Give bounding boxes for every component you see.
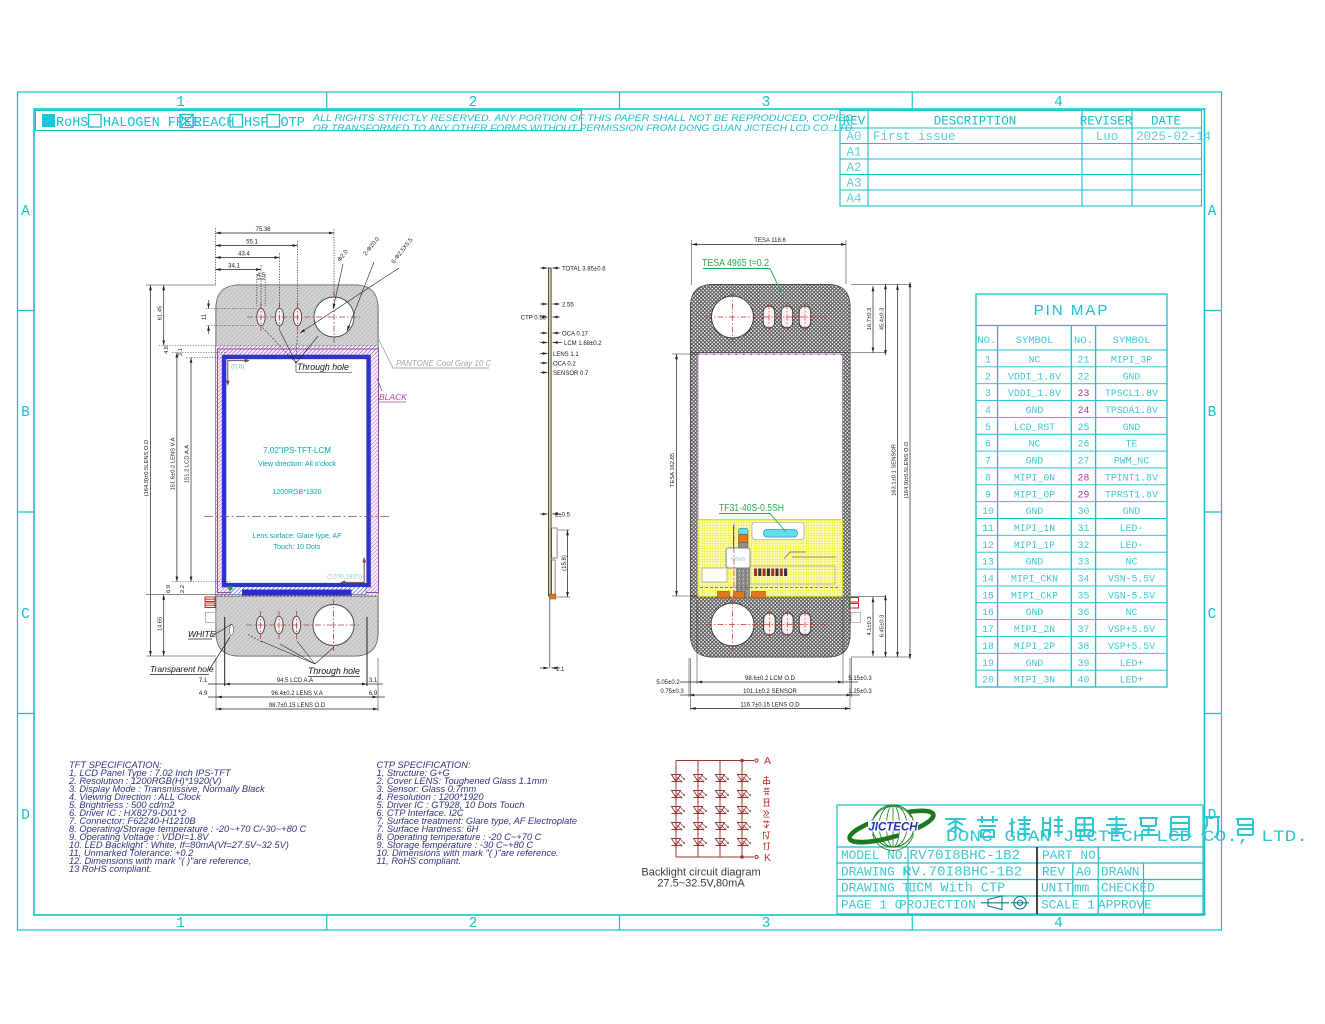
svg-text:101.1±0.2 SENSOR: 101.1±0.2 SENSOR — [743, 689, 797, 695]
svg-text:11: 11 — [982, 523, 994, 534]
svg-text:4.8: 4.8 — [164, 346, 170, 354]
svg-text:36: 36 — [1078, 607, 1090, 618]
svg-text:TFT SPECIFICATION: 1, LCD Pane: TFT SPECIFICATION: 1, LCD Panel Type : 7… — [68, 760, 309, 874]
svg-text:5.05±0.2: 5.05±0.2 — [656, 680, 680, 686]
svg-text:RoHS: RoHS — [56, 116, 88, 131]
svg-text:43.4: 43.4 — [238, 252, 250, 258]
svg-text:3.1: 3.1 — [369, 678, 378, 684]
svg-text:0.75±0.3: 0.75±0.3 — [660, 689, 684, 695]
svg-text:LED+: LED+ — [1120, 658, 1144, 669]
svg-text:SENSOR 0.7: SENSOR 0.7 — [553, 371, 589, 377]
svg-text:C: C — [21, 607, 30, 623]
svg-text:MIPI_0N: MIPI_0N — [1014, 472, 1055, 483]
svg-text:A0: A0 — [846, 130, 861, 144]
svg-text:14: 14 — [982, 574, 994, 585]
svg-text:VSN-5.5V: VSN-5.5V — [1108, 574, 1155, 585]
svg-text:B: B — [21, 405, 30, 421]
svg-text:Through hole: Through hole — [308, 666, 360, 676]
svg-text:GT928: GT928 — [731, 557, 745, 562]
svg-text:TOTAL 3.85±0.6: TOTAL 3.85±0.6 — [562, 267, 606, 273]
svg-text:LCD_RST: LCD_RST — [1014, 422, 1055, 433]
svg-text:TESA 118.6: TESA 118.6 — [754, 238, 786, 244]
svg-text:MIPI_CKN: MIPI_CKN — [1011, 574, 1058, 585]
svg-text:14.65: 14.65 — [158, 617, 164, 632]
svg-text:2.2: 2.2 — [180, 585, 186, 593]
svg-text:16: 16 — [982, 607, 994, 618]
svg-text:JICTECH: JICTECH — [868, 822, 918, 834]
svg-text:GND: GND — [1123, 422, 1141, 433]
svg-text:30: 30 — [1078, 506, 1090, 517]
svg-text:25: 25 — [1078, 422, 1090, 433]
svg-text:DRAWN: DRAWN — [1101, 865, 1139, 880]
svg-text:REV: REV — [843, 115, 866, 129]
svg-text:NC: NC — [1029, 439, 1041, 450]
svg-text:4.5: 4.5 — [257, 273, 266, 279]
svg-text:40: 40 — [1078, 675, 1090, 686]
svg-text:4.9: 4.9 — [199, 691, 208, 697]
svg-text:17: 17 — [982, 624, 994, 635]
svg-text:151.2 LCD A.A: 151.2 LCD A.A — [185, 445, 191, 483]
svg-text:26: 26 — [1078, 439, 1090, 450]
svg-text:23: 23 — [1078, 388, 1090, 399]
svg-text:75.36: 75.36 — [255, 227, 271, 233]
svg-text:35: 35 — [1078, 590, 1090, 601]
svg-text:7.02"IPS-TFT-LCM: 7.02"IPS-TFT-LCM — [263, 446, 331, 455]
svg-text:CHECKED: CHECKED — [1101, 881, 1155, 896]
svg-text:(164.9)±0.5LENS O.D: (164.9)±0.5LENS O.D — [904, 442, 910, 499]
svg-text:38: 38 — [1078, 641, 1090, 652]
svg-text:A: A — [21, 204, 30, 220]
svg-text:32: 32 — [1078, 540, 1090, 551]
svg-text:LED+: LED+ — [1120, 675, 1144, 686]
svg-text:4: 4 — [985, 405, 991, 416]
svg-text:6.9: 6.9 — [166, 585, 172, 593]
svg-text:39: 39 — [1078, 658, 1090, 669]
svg-text:2: 2 — [469, 916, 478, 932]
svg-text:MIPI_3P: MIPI_3P — [1111, 355, 1152, 366]
svg-text:REVISER: REVISER — [1080, 115, 1133, 129]
svg-text:MIPI_1P: MIPI_1P — [1014, 540, 1055, 551]
svg-text:12: 12 — [982, 540, 994, 551]
svg-text:HALOGEN FREE: HALOGEN FREE — [103, 116, 200, 131]
svg-text:11: 11 — [202, 313, 208, 320]
svg-text:TF31-40S-0.5SH: TF31-40S-0.5SH — [719, 503, 784, 514]
svg-text:Φ2.0: Φ2.0 — [337, 249, 350, 264]
svg-text:TE: TE — [1126, 439, 1138, 450]
svg-text:18: 18 — [982, 641, 994, 652]
svg-text:28: 28 — [1078, 472, 1090, 483]
svg-text:MIPI_0P: MIPI_0P — [1014, 489, 1055, 500]
svg-text:Transparent hole: Transparent hole — [150, 664, 214, 674]
svg-text:DRAWING TI: DRAWING TI — [841, 881, 918, 896]
svg-text:DESCRIPTION: DESCRIPTION — [934, 115, 1017, 129]
svg-text:PROJECTION: PROJECTION — [899, 898, 976, 913]
svg-text:NO.: NO. — [1074, 335, 1093, 347]
svg-text:CTP 0.55: CTP 0.55 — [521, 316, 547, 322]
svg-text:A2: A2 — [846, 161, 861, 175]
svg-text:mm: mm — [1074, 881, 1090, 896]
svg-text:6.45±0.3: 6.45±0.3 — [880, 615, 886, 638]
svg-text:1: 1 — [176, 95, 185, 111]
svg-text:BLACK: BLACK — [379, 392, 407, 402]
svg-text:9: 9 — [985, 489, 991, 500]
svg-text:VSN-5.5V: VSN-5.5V — [1108, 590, 1155, 601]
svg-text:LED-: LED- — [1120, 523, 1144, 534]
svg-text:WHITE: WHITE — [188, 629, 216, 639]
svg-text:DRAWING N: DRAWING N — [841, 865, 910, 880]
svg-text:SYMBOL: SYMBOL — [1016, 335, 1054, 347]
svg-text:37: 37 — [1078, 624, 1090, 635]
svg-text:GND: GND — [1026, 658, 1044, 669]
svg-text:3: 3 — [762, 95, 771, 111]
svg-text:UNIT: UNIT — [1041, 881, 1072, 896]
svg-text:CTP SPECIFICATION: 1, Structur: CTP SPECIFICATION: 1, Structure: G+G 2. … — [376, 760, 580, 866]
svg-text:(1200,1920): (1200,1920) — [327, 574, 362, 581]
svg-text:MIPI_2P: MIPI_2P — [1014, 641, 1055, 652]
svg-text:SYMBOL: SYMBOL — [1113, 335, 1151, 347]
svg-text:TPSCL1.8V: TPSCL1.8V — [1105, 388, 1158, 399]
svg-text:(15.8): (15.8) — [562, 555, 568, 571]
svg-text:2: 2 — [469, 95, 478, 111]
svg-text:MIPI_1N: MIPI_1N — [1014, 523, 1055, 534]
svg-text:8: 8 — [985, 472, 991, 483]
svg-text:A1: A1 — [846, 146, 861, 160]
svg-text:View direction: All o'clock: View direction: All o'clock — [258, 461, 336, 468]
svg-text:98.7±0.15 LENS O.D: 98.7±0.15 LENS O.D — [269, 703, 326, 709]
svg-text:PWM_NC: PWM_NC — [1114, 456, 1149, 467]
svg-text:6: 6 — [985, 439, 991, 450]
svg-text:(164.9)±0.5LENS O.D: (164.9)±0.5LENS O.D — [144, 440, 150, 497]
svg-text:VDDI_1.8V: VDDI_1.8V — [1008, 371, 1061, 382]
svg-text:19: 19 — [982, 658, 994, 669]
svg-text:Through hole: Through hole — [297, 362, 349, 372]
svg-text:D: D — [21, 808, 30, 824]
svg-text:C: C — [1208, 607, 1217, 623]
svg-text:Lens surface: Glare type, AF: Lens surface: Glare type, AF — [253, 533, 342, 540]
svg-text:TPSDA1.8V: TPSDA1.8V — [1105, 405, 1158, 416]
svg-text:Luo: Luo — [1096, 130, 1119, 144]
svg-text:GND: GND — [1123, 506, 1141, 517]
svg-text:REV: REV — [1042, 865, 1065, 880]
svg-text:A4: A4 — [846, 192, 861, 206]
svg-text:TPRST1.8V: TPRST1.8V — [1105, 489, 1158, 500]
svg-text:20: 20 — [982, 675, 994, 686]
svg-text:GND: GND — [1026, 607, 1044, 618]
svg-text:LENS 1.1: LENS 1.1 — [553, 352, 579, 358]
svg-text:PANTONE Cool Gray 10 C: PANTONE Cool Gray 10 C — [396, 359, 492, 368]
svg-text:GND: GND — [1026, 506, 1044, 517]
svg-text:K: K — [764, 852, 771, 864]
svg-text:3: 3 — [985, 388, 991, 399]
svg-text:TPINT1.8V: TPINT1.8V — [1105, 472, 1158, 483]
svg-text:5.15±0.3: 5.15±0.3 — [848, 676, 872, 682]
svg-text:MIPI_2N: MIPI_2N — [1014, 624, 1055, 635]
svg-text:DATE: DATE — [1151, 115, 1181, 129]
svg-text:LCM 1.68±0.2: LCM 1.68±0.2 — [564, 341, 602, 347]
svg-text:Touch: 10 Dots: Touch: 10 Dots — [274, 544, 321, 551]
svg-text:3: 3 — [762, 916, 771, 932]
svg-text:31: 31 — [1078, 523, 1090, 534]
svg-text:98.6±0.2 LCM O.D: 98.6±0.2 LCM O.D — [745, 676, 796, 682]
svg-text:7: 7 — [985, 456, 991, 467]
svg-text:27: 27 — [1078, 456, 1090, 467]
svg-text:MIPI_3N: MIPI_3N — [1014, 675, 1055, 686]
svg-text:55.1: 55.1 — [246, 240, 258, 246]
svg-text:27.5~32.5V,80mA: 27.5~32.5V,80mA — [657, 878, 745, 890]
svg-text:6-Φ2.5X5.5: 6-Φ2.5X5.5 — [391, 237, 415, 265]
svg-text:22: 22 — [1078, 371, 1090, 382]
svg-text:10: 10 — [982, 506, 994, 517]
svg-text:GND: GND — [1026, 405, 1044, 416]
svg-text:First issue: First issue — [873, 130, 956, 144]
svg-text:1: 1 — [985, 355, 991, 366]
svg-text:5: 5 — [985, 422, 991, 433]
svg-text:2±0.5: 2±0.5 — [555, 513, 571, 519]
svg-text:2: 2 — [985, 371, 991, 382]
svg-text:NC: NC — [1126, 607, 1138, 618]
svg-text:33: 33 — [1078, 557, 1090, 568]
svg-text:163.1±0.1 SENSOR: 163.1±0.1 SENSOR — [892, 444, 898, 496]
svg-text:REACH: REACH — [194, 116, 235, 131]
svg-text:29: 29 — [1078, 489, 1090, 500]
svg-text:116.7±0.15 LENS O.D: 116.7±0.15 LENS O.D — [740, 703, 800, 709]
svg-text:TESA 162.85: TESA 162.85 — [670, 453, 676, 487]
svg-text:PAGE 1 O: PAGE 1 O — [841, 898, 903, 913]
svg-text:A3: A3 — [846, 177, 861, 191]
svg-text:151.6±0.2 LENS V.A: 151.6±0.2 LENS V.A — [171, 437, 177, 490]
svg-text:VSP+5.5V: VSP+5.5V — [1108, 624, 1155, 635]
svg-text:MIPI_CKP: MIPI_CKP — [1011, 590, 1058, 601]
svg-text:A0: A0 — [1076, 865, 1091, 880]
svg-text:A: A — [1208, 204, 1217, 220]
svg-text:34: 34 — [1078, 574, 1090, 585]
svg-text:A: A — [764, 755, 771, 767]
svg-text:1: 1 — [176, 916, 185, 932]
svg-text:15: 15 — [982, 590, 994, 601]
svg-text:B: B — [1208, 405, 1217, 421]
svg-text:16.7±0.3: 16.7±0.3 — [867, 308, 873, 331]
svg-text:1.1: 1.1 — [556, 667, 565, 673]
svg-text:RV.70I8BHC-1B2: RV.70I8BHC-1B2 — [903, 865, 1022, 881]
svg-text:TESA 4965 t=0.2: TESA 4965 t=0.2 — [702, 258, 769, 269]
svg-text:7.1: 7.1 — [199, 678, 208, 684]
svg-text:2-Φ20.0: 2-Φ20.0 — [363, 236, 382, 257]
svg-text:OCA 0.2: OCA 0.2 — [553, 362, 576, 368]
svg-text:NC: NC — [1126, 557, 1138, 568]
svg-text:SCALE 1: SCALE 1 — [1041, 898, 1095, 913]
svg-text:6.9: 6.9 — [369, 691, 378, 697]
svg-text:OTP: OTP — [281, 116, 305, 131]
svg-text:45.4±0.3: 45.4±0.3 — [880, 308, 886, 331]
svg-text:2025-02-14: 2025-02-14 — [1136, 130, 1211, 144]
svg-text:VSP+5.5V: VSP+5.5V — [1108, 641, 1155, 652]
svg-text:1200RGB*1920: 1200RGB*1920 — [272, 489, 321, 496]
svg-text:PIN MAP: PIN MAP — [1034, 302, 1110, 319]
svg-text:1.25±0.3: 1.25±0.3 — [848, 689, 872, 695]
svg-text:.RV70I8BHC-1B2: .RV70I8BHC-1B2 — [901, 848, 1020, 864]
svg-text:4.1±0.3: 4.1±0.3 — [867, 616, 873, 635]
svg-text:2.1: 2.1 — [178, 348, 184, 356]
svg-text:GND: GND — [1026, 456, 1044, 467]
svg-text:94.5 LCD A.A: 94.5 LCD A.A — [277, 678, 313, 684]
svg-text:34.1: 34.1 — [228, 264, 240, 270]
svg-text:LCM With CTP: LCM With CTP — [908, 882, 1005, 897]
svg-text:VDDI_1.8V: VDDI_1.8V — [1008, 388, 1061, 399]
svg-text:GND: GND — [1026, 557, 1044, 568]
svg-text:(0,0): (0,0) — [231, 364, 244, 371]
svg-text:96.4±0.2 LENS V.A: 96.4±0.2 LENS V.A — [271, 691, 322, 697]
svg-text:DONG GUAN JICTECH LCD CO., LTD: DONG GUAN JICTECH LCD CO., LTD. — [946, 828, 1308, 846]
svg-text:PART NO.: PART NO. — [1042, 848, 1103, 863]
svg-text:NO.: NO. — [977, 335, 996, 347]
svg-text:NC: NC — [1029, 355, 1041, 366]
svg-text:OR TRANSFORMED TO ANY OTHER FO: OR TRANSFORMED TO ANY OTHER FORMS WITHOU… — [313, 123, 855, 134]
svg-text:24: 24 — [1078, 405, 1090, 416]
svg-text:4: 4 — [1054, 916, 1063, 932]
svg-text:LED-: LED- — [1120, 540, 1144, 551]
svg-text:61.45: 61.45 — [158, 306, 164, 321]
svg-text:APPROVE: APPROVE — [1098, 898, 1152, 913]
svg-text:OCA 0.17: OCA 0.17 — [562, 332, 589, 338]
svg-text:4: 4 — [1054, 95, 1063, 111]
svg-text:2.55: 2.55 — [562, 303, 574, 309]
svg-text:HSF: HSF — [244, 116, 268, 131]
svg-text:21: 21 — [1078, 355, 1090, 366]
svg-text:13: 13 — [982, 557, 994, 568]
svg-text:GND: GND — [1123, 371, 1141, 382]
